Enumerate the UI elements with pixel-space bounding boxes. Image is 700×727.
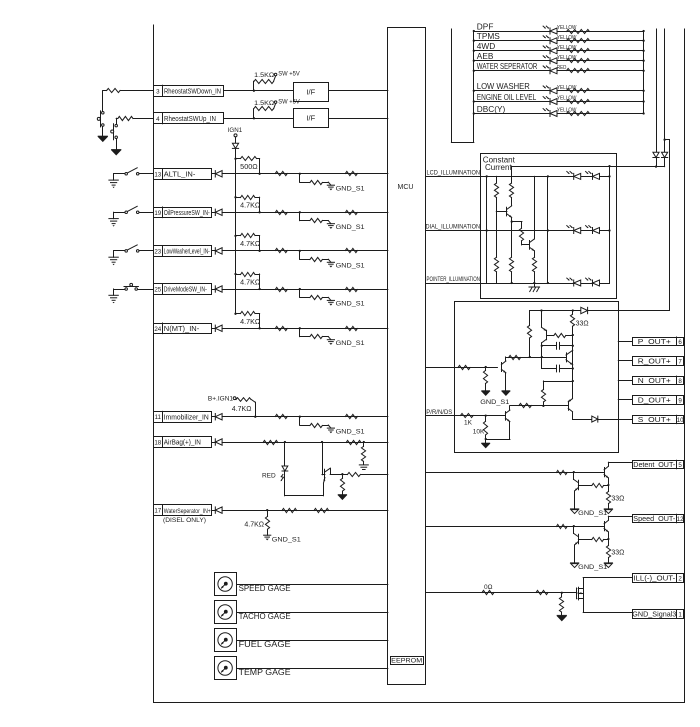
- svg-text:4.7KΩ: 4.7KΩ: [240, 279, 260, 286]
- svg-text:10: 10: [677, 417, 684, 424]
- svg-text:MCU: MCU: [398, 184, 414, 191]
- svg-text:4.7KΩ: 4.7KΩ: [244, 522, 264, 529]
- svg-text:11: 11: [155, 414, 162, 421]
- svg-text:GND_S1: GND_S1: [578, 564, 608, 571]
- svg-text:AEB: AEB: [477, 51, 494, 61]
- svg-text:YELLOW: YELLOW: [557, 25, 577, 31]
- svg-text:25: 25: [154, 287, 161, 294]
- svg-text:3: 3: [156, 89, 160, 96]
- svg-text:17: 17: [154, 508, 161, 515]
- svg-text:IGN1: IGN1: [228, 127, 243, 134]
- svg-text:N(MT)_IN-: N(MT)_IN-: [164, 324, 200, 333]
- svg-text:6: 6: [678, 339, 682, 346]
- svg-text:DriveModeSW_IN-: DriveModeSW_IN-: [164, 287, 207, 294]
- svg-text:GND_S1: GND_S1: [336, 301, 366, 308]
- svg-text:RED: RED: [557, 65, 567, 71]
- svg-text:P_OUT+: P_OUT+: [638, 337, 672, 346]
- svg-text:8: 8: [678, 378, 682, 385]
- svg-text:I/F: I/F: [306, 87, 315, 96]
- svg-text:YELLOW: YELLOW: [557, 55, 577, 61]
- svg-text:Immobilizer_IN: Immobilizer_IN: [164, 414, 209, 421]
- svg-text:Detent_OUT-: Detent_OUT-: [633, 460, 675, 469]
- svg-text:1.5KΩ: 1.5KΩ: [254, 100, 274, 107]
- svg-text:FUEL GAGE: FUEL GAGE: [239, 640, 291, 649]
- svg-text:S_OUT+: S_OUT+: [638, 415, 672, 424]
- svg-text:OilPressureSW_IN-: OilPressureSW_IN-: [164, 210, 210, 217]
- svg-text:YELLOW: YELLOW: [557, 108, 577, 114]
- svg-text:GND_S1: GND_S1: [336, 428, 366, 435]
- svg-text:YELLOW: YELLOW: [557, 96, 577, 102]
- svg-text:19: 19: [154, 210, 161, 217]
- svg-text:YELLOW: YELLOW: [557, 85, 577, 91]
- svg-text:DIAL_ILLUMINATION: DIAL_ILLUMINATION: [426, 224, 481, 231]
- svg-text:13: 13: [154, 171, 161, 178]
- svg-text:2: 2: [678, 576, 682, 583]
- svg-text:5: 5: [678, 462, 682, 469]
- svg-text:GND_S1: GND_S1: [578, 510, 608, 517]
- svg-text:TACHO GAGE: TACHO GAGE: [239, 612, 291, 621]
- svg-text:500Ω: 500Ω: [240, 164, 258, 171]
- svg-text:12: 12: [677, 516, 684, 523]
- svg-text:GND_S1: GND_S1: [336, 263, 366, 270]
- svg-text:33Ω: 33Ω: [611, 550, 624, 557]
- svg-text:18: 18: [154, 440, 161, 447]
- svg-text:4WD: 4WD: [477, 41, 495, 51]
- svg-text:4.7KΩ: 4.7KΩ: [240, 203, 260, 210]
- svg-text:YELLOW: YELLOW: [557, 35, 577, 41]
- svg-text:AirBag(+)_IN: AirBag(+)_IN: [164, 440, 201, 447]
- svg-text:ALTL_IN-: ALTL_IN-: [164, 170, 196, 179]
- svg-text:33Ω: 33Ω: [611, 496, 624, 503]
- svg-text:POINTER_ILLUMINATION: POINTER_ILLUMINATION: [427, 276, 481, 283]
- svg-text:9: 9: [678, 398, 682, 405]
- svg-text:(DISEL ONLY): (DISEL ONLY): [163, 517, 206, 524]
- svg-text:LowWasherLevel_IN-: LowWasherLevel_IN-: [164, 249, 210, 256]
- svg-text:YELLOW: YELLOW: [557, 45, 577, 51]
- svg-text:D_OUT+: D_OUT+: [638, 396, 672, 405]
- svg-text:I/F: I/F: [306, 113, 315, 122]
- svg-text:LCD_ILLUMINATION: LCD_ILLUMINATION: [427, 170, 481, 177]
- svg-text:ILL(-)_OUT-: ILL(-)_OUT-: [633, 574, 676, 583]
- svg-text:SPEED GAGE: SPEED GAGE: [239, 584, 291, 593]
- svg-text:10K: 10K: [473, 429, 485, 436]
- svg-text:4.7KΩ: 4.7KΩ: [232, 406, 252, 413]
- svg-text:RED: RED: [262, 473, 276, 480]
- svg-text:DBC(Y): DBC(Y): [477, 104, 506, 114]
- svg-text:WaterSeperator_IN+: WaterSeperator_IN+: [164, 508, 211, 515]
- svg-text:ENGINE OIL LEVEL: ENGINE OIL LEVEL: [477, 92, 537, 102]
- svg-text:4.7KΩ: 4.7KΩ: [240, 241, 260, 248]
- svg-text:24: 24: [154, 326, 161, 333]
- svg-text:7: 7: [678, 358, 682, 365]
- svg-text:LOW WASHER: LOW WASHER: [477, 81, 530, 91]
- svg-text:1: 1: [678, 612, 682, 619]
- svg-text:B+.IGN1: B+.IGN1: [208, 396, 233, 403]
- svg-text:GND_S1: GND_S1: [272, 536, 302, 543]
- svg-text:SW +5V: SW +5V: [278, 99, 300, 105]
- svg-text:TPMS: TPMS: [477, 31, 501, 41]
- svg-text:23: 23: [154, 248, 161, 255]
- svg-text:RheostatSWUp_IN: RheostatSWUp_IN: [164, 116, 216, 123]
- svg-text:TEMP GAGE: TEMP GAGE: [239, 668, 291, 677]
- svg-text:33Ω: 33Ω: [576, 320, 589, 327]
- svg-text:4: 4: [156, 116, 160, 123]
- svg-text:0Ω: 0Ω: [484, 584, 493, 591]
- svg-text:Current: Current: [485, 163, 512, 172]
- svg-text:EEPROM: EEPROM: [391, 658, 422, 665]
- svg-text:1.5KΩ: 1.5KΩ: [254, 72, 274, 79]
- svg-text:GND_S1: GND_S1: [336, 224, 366, 231]
- svg-text:DPF: DPF: [477, 21, 494, 31]
- svg-text:R_OUT+: R_OUT+: [638, 357, 672, 366]
- svg-text:RheostatSWDown_IN: RheostatSWDown_IN: [164, 89, 221, 96]
- svg-text:SW +5V: SW +5V: [278, 72, 300, 78]
- svg-text:Speed_OUT-: Speed_OUT-: [633, 514, 675, 523]
- svg-text:P/R/N/DS: P/R/N/DS: [426, 409, 452, 416]
- svg-text:N_OUT+: N_OUT+: [638, 376, 672, 385]
- svg-text:1K: 1K: [464, 419, 473, 426]
- svg-text:GND_S1: GND_S1: [336, 340, 366, 347]
- svg-text:GND_Signal3: GND_Signal3: [632, 610, 676, 619]
- svg-text:GND_S1: GND_S1: [336, 185, 366, 192]
- svg-text:4.7KΩ: 4.7KΩ: [240, 319, 260, 326]
- svg-text:WATER SEPERATOR: WATER SEPERATOR: [477, 61, 538, 71]
- svg-text:GND_S1: GND_S1: [480, 399, 509, 406]
